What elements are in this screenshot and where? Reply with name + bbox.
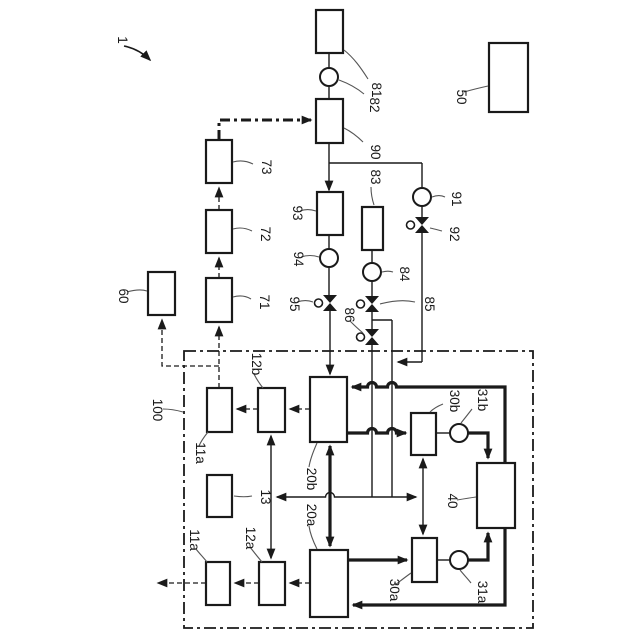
ref-label-92: 92 xyxy=(447,226,462,241)
leader-90 xyxy=(344,128,363,142)
circle-82 xyxy=(320,68,338,86)
leader-86 xyxy=(350,321,363,333)
ref-label-71: 71 xyxy=(257,294,272,309)
box-71 xyxy=(206,278,232,322)
box-60 xyxy=(148,272,175,315)
valve-92 xyxy=(407,217,430,233)
ref-label-11a-top: 11a xyxy=(193,442,208,464)
ref-label-1: 1 xyxy=(115,36,130,44)
ref-label-100: 100 xyxy=(150,399,165,422)
leader-82 xyxy=(339,80,364,94)
line-20b-to-30b xyxy=(347,429,406,434)
box-20a xyxy=(310,550,348,617)
circle-94 xyxy=(320,249,338,267)
ref-label-31b: 31b xyxy=(475,389,490,412)
box-50 xyxy=(489,43,528,112)
leader-30b xyxy=(430,404,443,412)
circle-31a xyxy=(450,551,468,569)
leader-92 xyxy=(430,228,442,231)
box-40 xyxy=(477,463,515,528)
figure-number-arrow xyxy=(124,46,150,60)
ref-label-91: 91 xyxy=(449,191,464,206)
line-31a-to-40 xyxy=(468,533,488,560)
box-81 xyxy=(316,10,343,53)
leader-83 xyxy=(371,187,374,205)
ref-label-13: 13 xyxy=(258,489,273,504)
box-72 xyxy=(206,210,232,253)
valve-86 xyxy=(357,329,380,345)
box-30b xyxy=(411,413,436,455)
ref-label-72: 72 xyxy=(258,226,273,241)
leader-12b xyxy=(254,374,263,388)
ref-label-83: 83 xyxy=(368,169,383,184)
circle-31b xyxy=(450,424,468,442)
ref-label-30a: 30a xyxy=(387,579,402,602)
feed-line-left xyxy=(277,493,372,498)
ref-label-31a: 31a xyxy=(475,581,490,604)
valve-86-actuator xyxy=(357,333,365,341)
ref-label-50: 50 xyxy=(454,89,469,104)
valve-95 xyxy=(315,295,338,311)
line-branch-to-60 xyxy=(162,320,219,366)
box-11a-top xyxy=(207,388,232,432)
leader-84 xyxy=(382,271,393,272)
diagram-svg: 1 50 60 71 72 73 81 82 83 84 85 86 90 91… xyxy=(0,0,640,640)
leader-85 xyxy=(380,301,415,304)
patent-diagram-canvas: 1 50 60 71 72 73 81 82 83 84 85 86 90 91… xyxy=(0,0,640,640)
box-93 xyxy=(317,192,343,235)
ref-label-20a: 20a xyxy=(304,504,319,527)
ref-label-30b: 30b xyxy=(447,390,462,413)
ref-label-20b: 20b xyxy=(304,468,319,491)
leader-20a xyxy=(309,526,317,549)
ref-label-40: 40 xyxy=(445,493,460,508)
line-31b-to-40 xyxy=(468,433,488,458)
line-73-to-90 xyxy=(219,120,311,140)
valve-92-actuator xyxy=(407,221,415,229)
box-11a-bottom xyxy=(206,562,230,605)
ref-label-81: 81 xyxy=(369,82,384,97)
ref-label-11a-bottom: 11a xyxy=(187,529,202,551)
ref-label-95: 95 xyxy=(287,296,302,311)
ref-label-60: 60 xyxy=(116,288,131,303)
leader-91 xyxy=(432,196,445,198)
leader-100 xyxy=(163,409,183,412)
ref-label-94: 94 xyxy=(291,251,306,267)
box-90 xyxy=(316,99,343,143)
circle-84 xyxy=(363,263,381,281)
ref-label-84: 84 xyxy=(397,266,412,282)
leader-11a-bottom xyxy=(196,549,207,562)
ref-label-90: 90 xyxy=(368,144,383,159)
leader-13 xyxy=(234,496,252,497)
box-13 xyxy=(207,475,232,517)
ref-label-85: 85 xyxy=(422,296,437,311)
ref-label-86: 86 xyxy=(342,307,357,322)
leader-72 xyxy=(233,228,252,231)
box-20b xyxy=(310,377,347,442)
box-30a xyxy=(412,538,437,582)
box-12b xyxy=(258,388,285,432)
ref-label-82: 82 xyxy=(367,97,382,112)
leader-20b xyxy=(309,443,317,467)
ref-label-12b: 12b xyxy=(249,353,264,376)
leader-31a xyxy=(460,570,471,583)
ref-label-93: 93 xyxy=(290,205,305,220)
box-83 xyxy=(362,207,383,250)
valve-95-actuator xyxy=(315,299,323,307)
ref-label-12a: 12a xyxy=(243,527,258,550)
valve-85 xyxy=(357,296,380,312)
box-12a xyxy=(259,562,285,605)
leader-73 xyxy=(233,161,253,164)
circle-91 xyxy=(413,188,431,206)
leader-71 xyxy=(233,296,251,299)
leader-81 xyxy=(344,50,368,79)
ref-label-73: 73 xyxy=(259,159,274,174)
box-73 xyxy=(206,140,232,183)
